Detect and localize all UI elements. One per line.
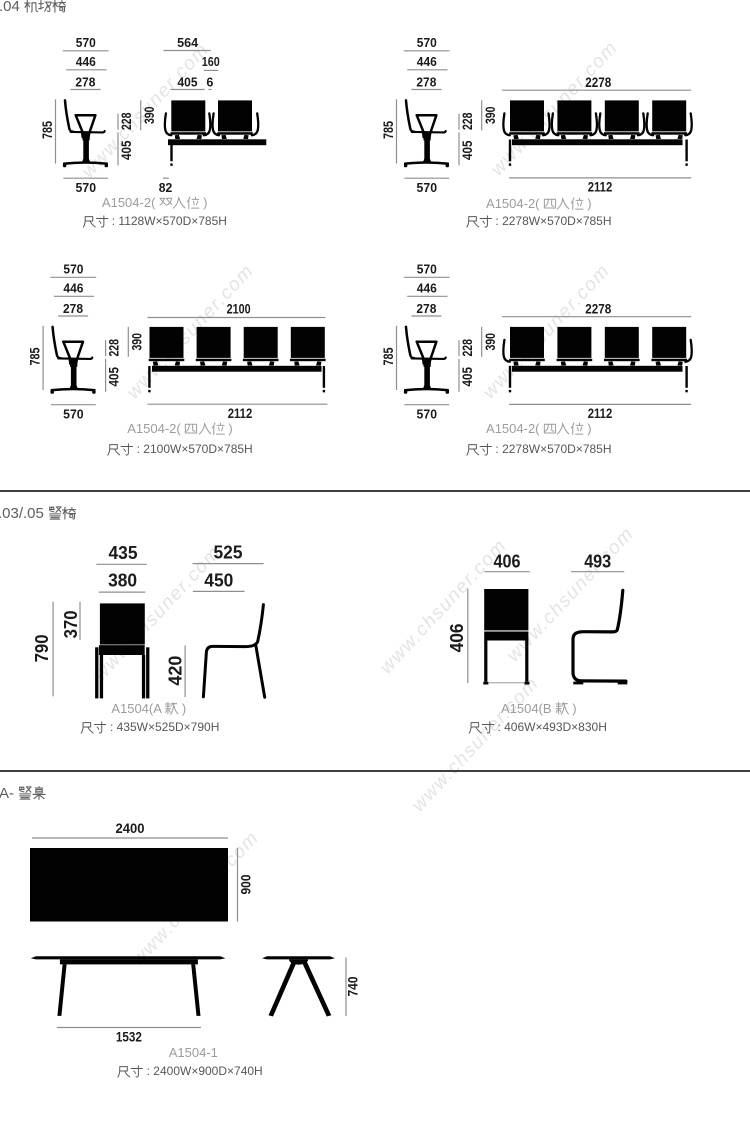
svg-text:2100: 2100 — [227, 301, 251, 317]
svg-text:406: 406 — [494, 552, 521, 572]
svg-text:2112: 2112 — [588, 406, 613, 421]
svg-text:82: 82 — [159, 180, 173, 195]
svg-text:406: 406 — [447, 623, 467, 652]
svg-text:900: 900 — [237, 874, 253, 894]
svg-text:740: 740 — [346, 977, 361, 997]
svg-text:493: 493 — [584, 552, 611, 572]
svg-text:2278: 2278 — [585, 301, 611, 317]
svg-text:564: 564 — [177, 36, 198, 50]
svg-text:1532: 1532 — [116, 1029, 142, 1045]
svg-text:790: 790 — [32, 634, 52, 662]
svg-text:6: 6 — [206, 75, 213, 89]
svg-text:2112: 2112 — [228, 406, 253, 421]
svg-text:160: 160 — [202, 55, 220, 69]
svg-text:380: 380 — [108, 570, 137, 590]
svg-text:2112: 2112 — [588, 180, 613, 195]
svg-text:525: 525 — [214, 543, 243, 563]
svg-text:370: 370 — [61, 610, 81, 638]
svg-text:450: 450 — [204, 570, 233, 590]
svg-text:405: 405 — [178, 75, 198, 89]
svg-text:2278: 2278 — [585, 74, 611, 90]
svg-text:435: 435 — [109, 543, 138, 563]
svg-text:420: 420 — [166, 656, 186, 686]
svg-text:2400: 2400 — [116, 820, 145, 836]
